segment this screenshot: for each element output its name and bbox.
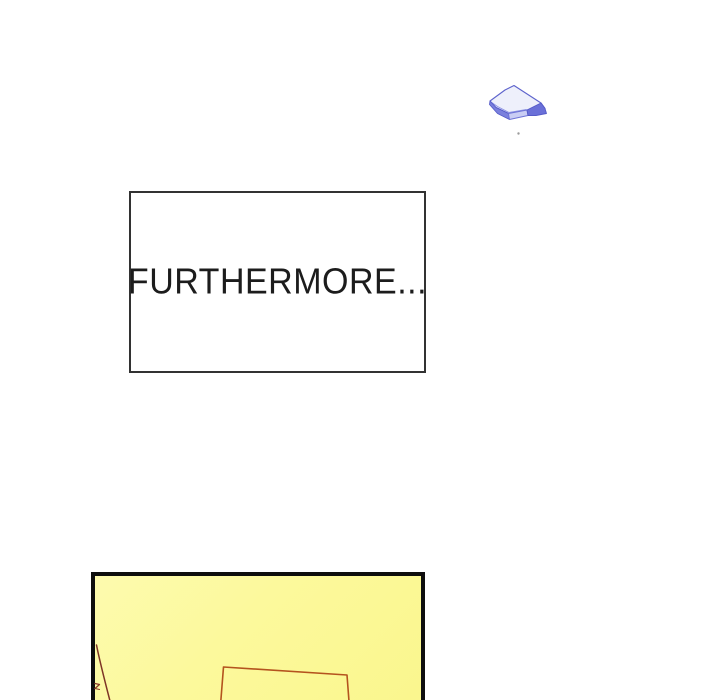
comic-page: FURTHERMORE...: [0, 0, 720, 700]
caption-text: FURTHERMORE...: [128, 261, 427, 302]
comic-panel: [91, 572, 425, 700]
blue-crystal-shard-icon: [486, 78, 550, 140]
caption-box: FURTHERMORE...: [129, 191, 426, 373]
falling-speck: [517, 132, 519, 134]
